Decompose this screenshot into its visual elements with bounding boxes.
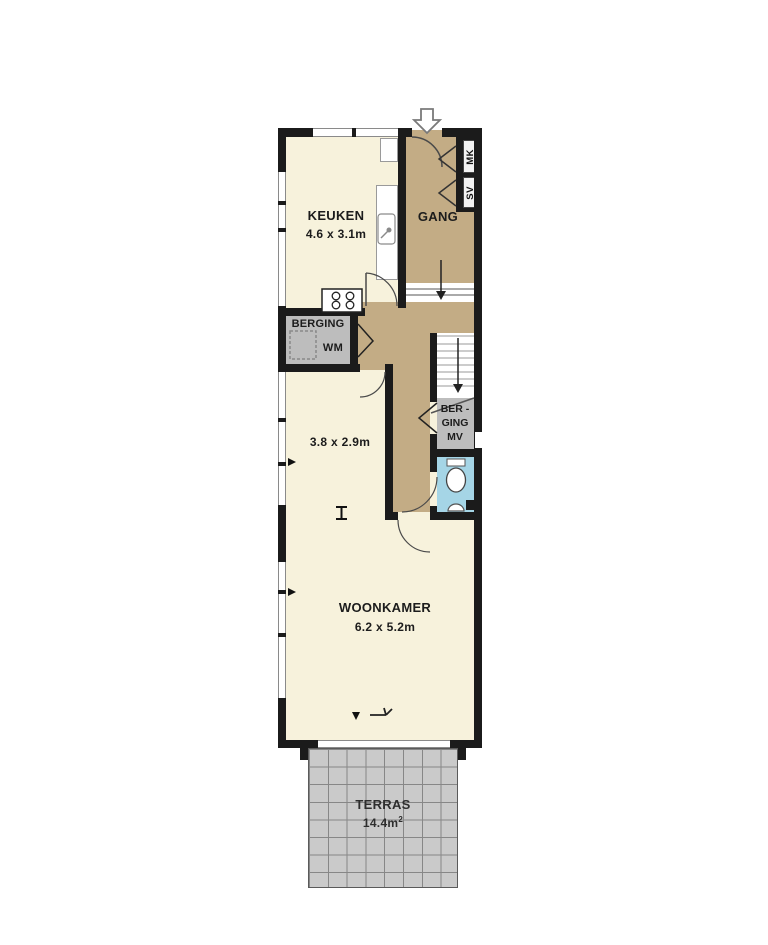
radiator-symbol [336,507,347,519]
woonkamer-label: WOONKAMER [300,601,470,616]
kitchen-door-arc [366,273,397,306]
berging-mv-door-chevron [419,403,437,433]
entrance-arrow-icon [414,109,440,133]
sv-door-chevron [439,180,456,206]
berging-mv-line3: MV [447,431,463,443]
woonkamer-dims: 6.2 x 5.2m [300,621,470,635]
woonkamer-door-arc [398,520,430,552]
berging-door-chevron [358,324,373,357]
floorplan-canvas: MK SV [0,0,768,945]
vent-marker [288,588,296,596]
terras-area-value: 14.4m [363,816,399,830]
stair-treads [437,336,474,386]
stairs-arrowhead [436,291,446,300]
keuken-label: KEUKEN [286,209,386,224]
berging-label: BERGING [285,318,351,331]
fountain-sink [448,504,464,511]
toilet-tank [447,459,465,466]
terras-area: 14.4m2 [308,815,458,831]
stove [322,289,362,312]
front-door-arc [412,137,442,167]
berging-mv-line1: BER - [441,403,470,415]
stairs-arrowhead [453,384,463,393]
vent-marker [288,458,296,466]
terras-area-exp: 2 [398,815,403,824]
keuken-dims: 4.6 x 3.1m [286,228,386,242]
berging-mv-label: BER - GING MV [436,402,474,444]
room-door-arc [360,372,385,397]
kamer-dims: 3.8 x 2.9m [286,436,394,450]
slider-marker [370,708,392,715]
terras-label: TERRAS [308,798,458,813]
gang-label: GANG [402,210,474,225]
toilet-bowl [447,468,466,492]
berging-mv-line2: GING [442,417,469,429]
washing-machine [290,331,316,359]
slider-marker [352,712,360,720]
toilet-door-arc [402,477,437,512]
wm-label: WM [316,342,350,355]
